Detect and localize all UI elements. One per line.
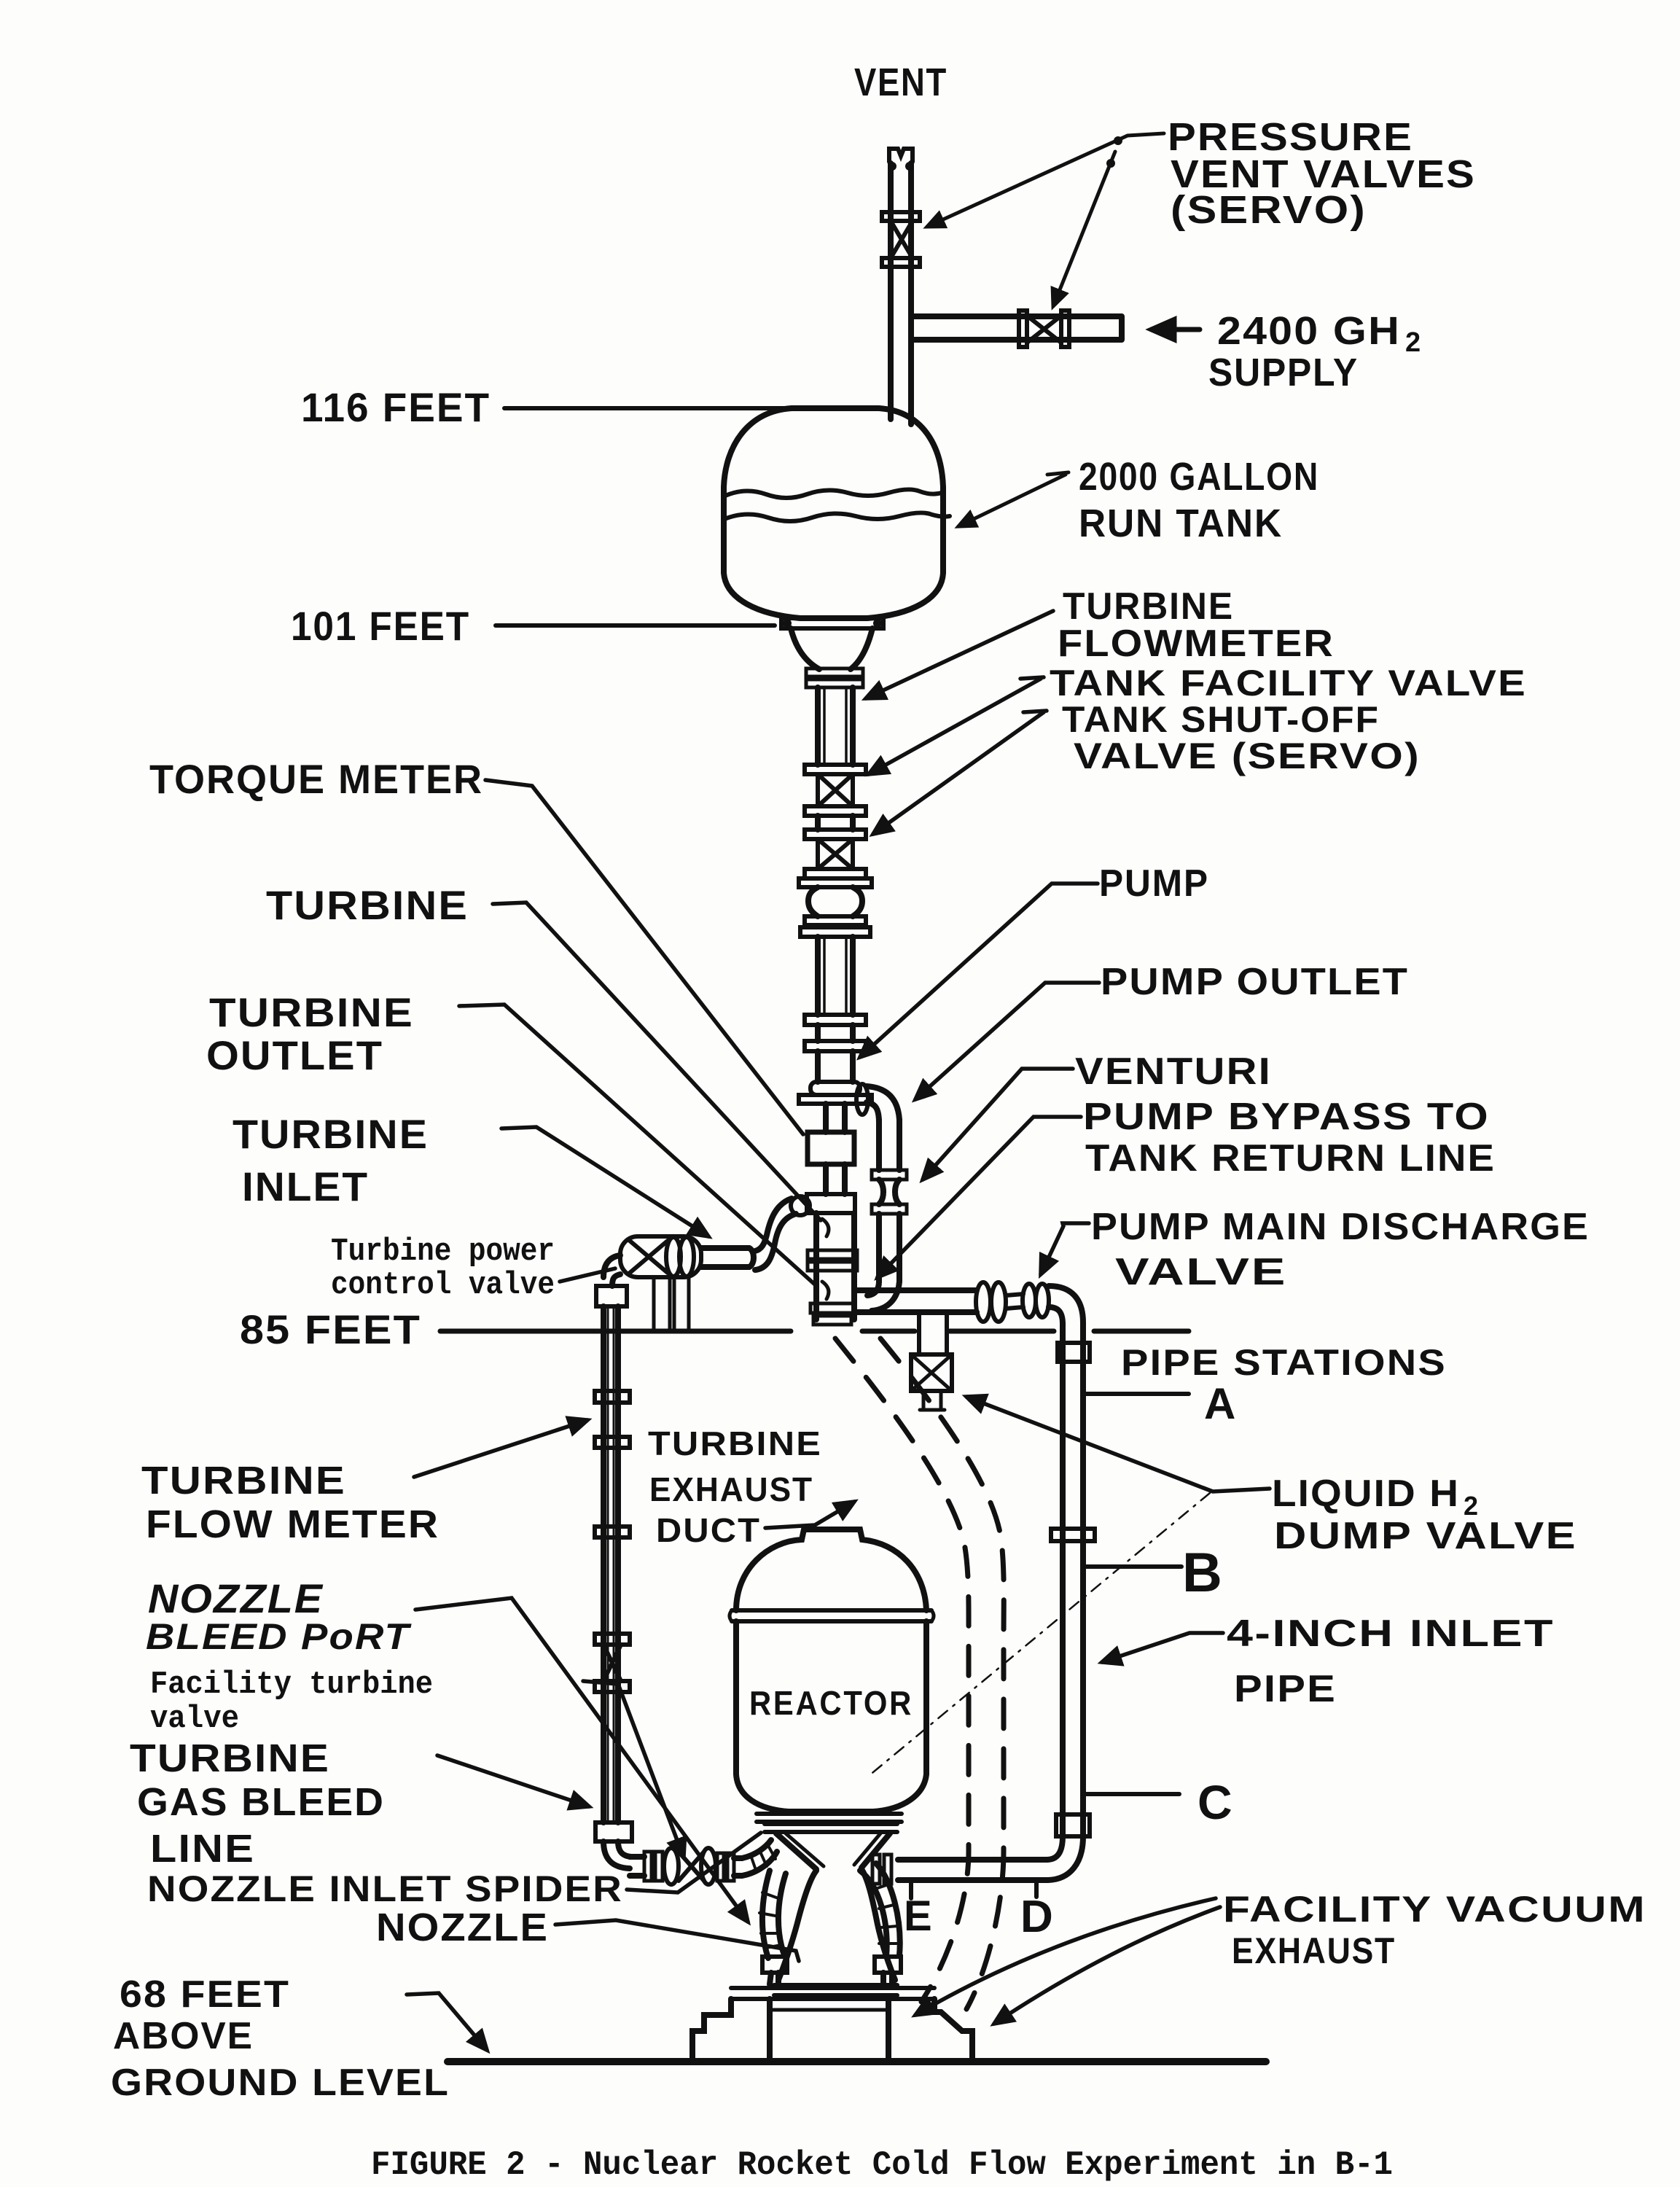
svg-text:(SERVO): (SERVO) bbox=[1171, 188, 1367, 232]
svg-text:ABOVE: ABOVE bbox=[113, 2015, 254, 2057]
svg-text:4-INCH INLET: 4-INCH INLET bbox=[1227, 1613, 1555, 1655]
svg-text:TURBINE: TURBINE bbox=[266, 882, 469, 928]
svg-text:PUMP MAIN DISCHARGE: PUMP MAIN DISCHARGE bbox=[1091, 1206, 1590, 1248]
svg-text:VALVE (SERVO): VALVE (SERVO) bbox=[1074, 736, 1421, 776]
svg-text:101 FEET: 101 FEET bbox=[291, 603, 470, 649]
svg-text:TURBINE: TURBINE bbox=[1063, 585, 1234, 628]
svg-text:valve: valve bbox=[150, 1701, 239, 1737]
svg-text:OUTLET: OUTLET bbox=[206, 1032, 383, 1078]
svg-text:Turbine power: Turbine power bbox=[331, 1233, 555, 1270]
svg-text:RUN TANK: RUN TANK bbox=[1079, 502, 1283, 545]
svg-text:LIQUID H: LIQUID H bbox=[1272, 1473, 1460, 1515]
svg-text:C: C bbox=[1198, 1775, 1234, 1829]
svg-text:E: E bbox=[904, 1892, 934, 1940]
svg-text:TURBINE: TURBINE bbox=[141, 1459, 346, 1502]
svg-text:D: D bbox=[1020, 1892, 1055, 1942]
svg-text:REACTOR: REACTOR bbox=[749, 1684, 913, 1722]
svg-text:NOZZLE: NOZZLE bbox=[376, 1906, 549, 1949]
svg-text:TURBINE: TURBINE bbox=[209, 989, 414, 1035]
svg-text:EXHAUST: EXHAUST bbox=[649, 1470, 813, 1508]
svg-text:LINE: LINE bbox=[150, 1827, 255, 1871]
svg-text:A: A bbox=[1204, 1379, 1237, 1428]
svg-text:TANK FACILITY VALVE: TANK FACILITY VALVE bbox=[1050, 663, 1527, 703]
svg-text:VENT: VENT bbox=[854, 61, 948, 104]
svg-text:FACILITY VACUUM: FACILITY VACUUM bbox=[1223, 1889, 1646, 1930]
svg-text:SUPPLY: SUPPLY bbox=[1208, 351, 1359, 394]
svg-text:VENTURI: VENTURI bbox=[1075, 1050, 1272, 1093]
svg-text:68 FEET: 68 FEET bbox=[120, 1973, 290, 2016]
svg-text:GAS BLEED: GAS BLEED bbox=[137, 1780, 385, 1824]
svg-text:2000 GALLON: 2000 GALLON bbox=[1079, 455, 1319, 499]
svg-text:2: 2 bbox=[1405, 327, 1422, 358]
svg-text:85 FEET: 85 FEET bbox=[240, 1306, 421, 1352]
svg-text:NOZZLE: NOZZLE bbox=[148, 1575, 324, 1621]
svg-text:DUMP VALVE: DUMP VALVE bbox=[1274, 1515, 1577, 1557]
svg-text:B: B bbox=[1182, 1542, 1224, 1604]
svg-text:116 FEET: 116 FEET bbox=[301, 384, 491, 430]
svg-text:TORQUE METER: TORQUE METER bbox=[149, 756, 483, 802]
svg-text:PUMP: PUMP bbox=[1099, 862, 1209, 905]
svg-text:TANK RETURN LINE: TANK RETURN LINE bbox=[1085, 1137, 1496, 1180]
svg-text:INLET: INLET bbox=[242, 1163, 369, 1209]
svg-text:DUCT: DUCT bbox=[656, 1511, 761, 1549]
svg-text:BLEED PoRT: BLEED PoRT bbox=[146, 1616, 413, 1657]
svg-text:TURBINE: TURBINE bbox=[648, 1424, 822, 1462]
svg-text:TURBINE: TURBINE bbox=[233, 1111, 429, 1157]
svg-text:TURBINE: TURBINE bbox=[130, 1736, 330, 1780]
svg-text:PIPE STATIONS: PIPE STATIONS bbox=[1121, 1342, 1447, 1383]
svg-text:PUMP OUTLET: PUMP OUTLET bbox=[1101, 961, 1409, 1003]
svg-text:2400 GH: 2400 GH bbox=[1217, 309, 1401, 353]
svg-text:TANK SHUT-OFF: TANK SHUT-OFF bbox=[1062, 699, 1380, 740]
svg-text:PIPE: PIPE bbox=[1234, 1668, 1337, 1710]
svg-text:VALVE: VALVE bbox=[1115, 1251, 1287, 1293]
svg-text:NOZZLE INLET SPIDER: NOZZLE INLET SPIDER bbox=[147, 1868, 623, 1909]
svg-text:GROUND LEVEL: GROUND LEVEL bbox=[111, 2062, 450, 2104]
svg-text:FLOW METER: FLOW METER bbox=[146, 1502, 439, 1546]
svg-text:PUMP BYPASS TO: PUMP BYPASS TO bbox=[1083, 1096, 1490, 1138]
svg-text:control valve: control valve bbox=[331, 1267, 555, 1303]
svg-text:FIGURE 2 - Nuclear Rocket Cold: FIGURE 2 - Nuclear Rocket Cold Flow Expe… bbox=[371, 2146, 1393, 2184]
svg-text:Facility turbine: Facility turbine bbox=[150, 1666, 433, 1703]
svg-text:EXHAUST: EXHAUST bbox=[1232, 1930, 1396, 1971]
svg-text:FLOWMETER: FLOWMETER bbox=[1058, 623, 1335, 665]
